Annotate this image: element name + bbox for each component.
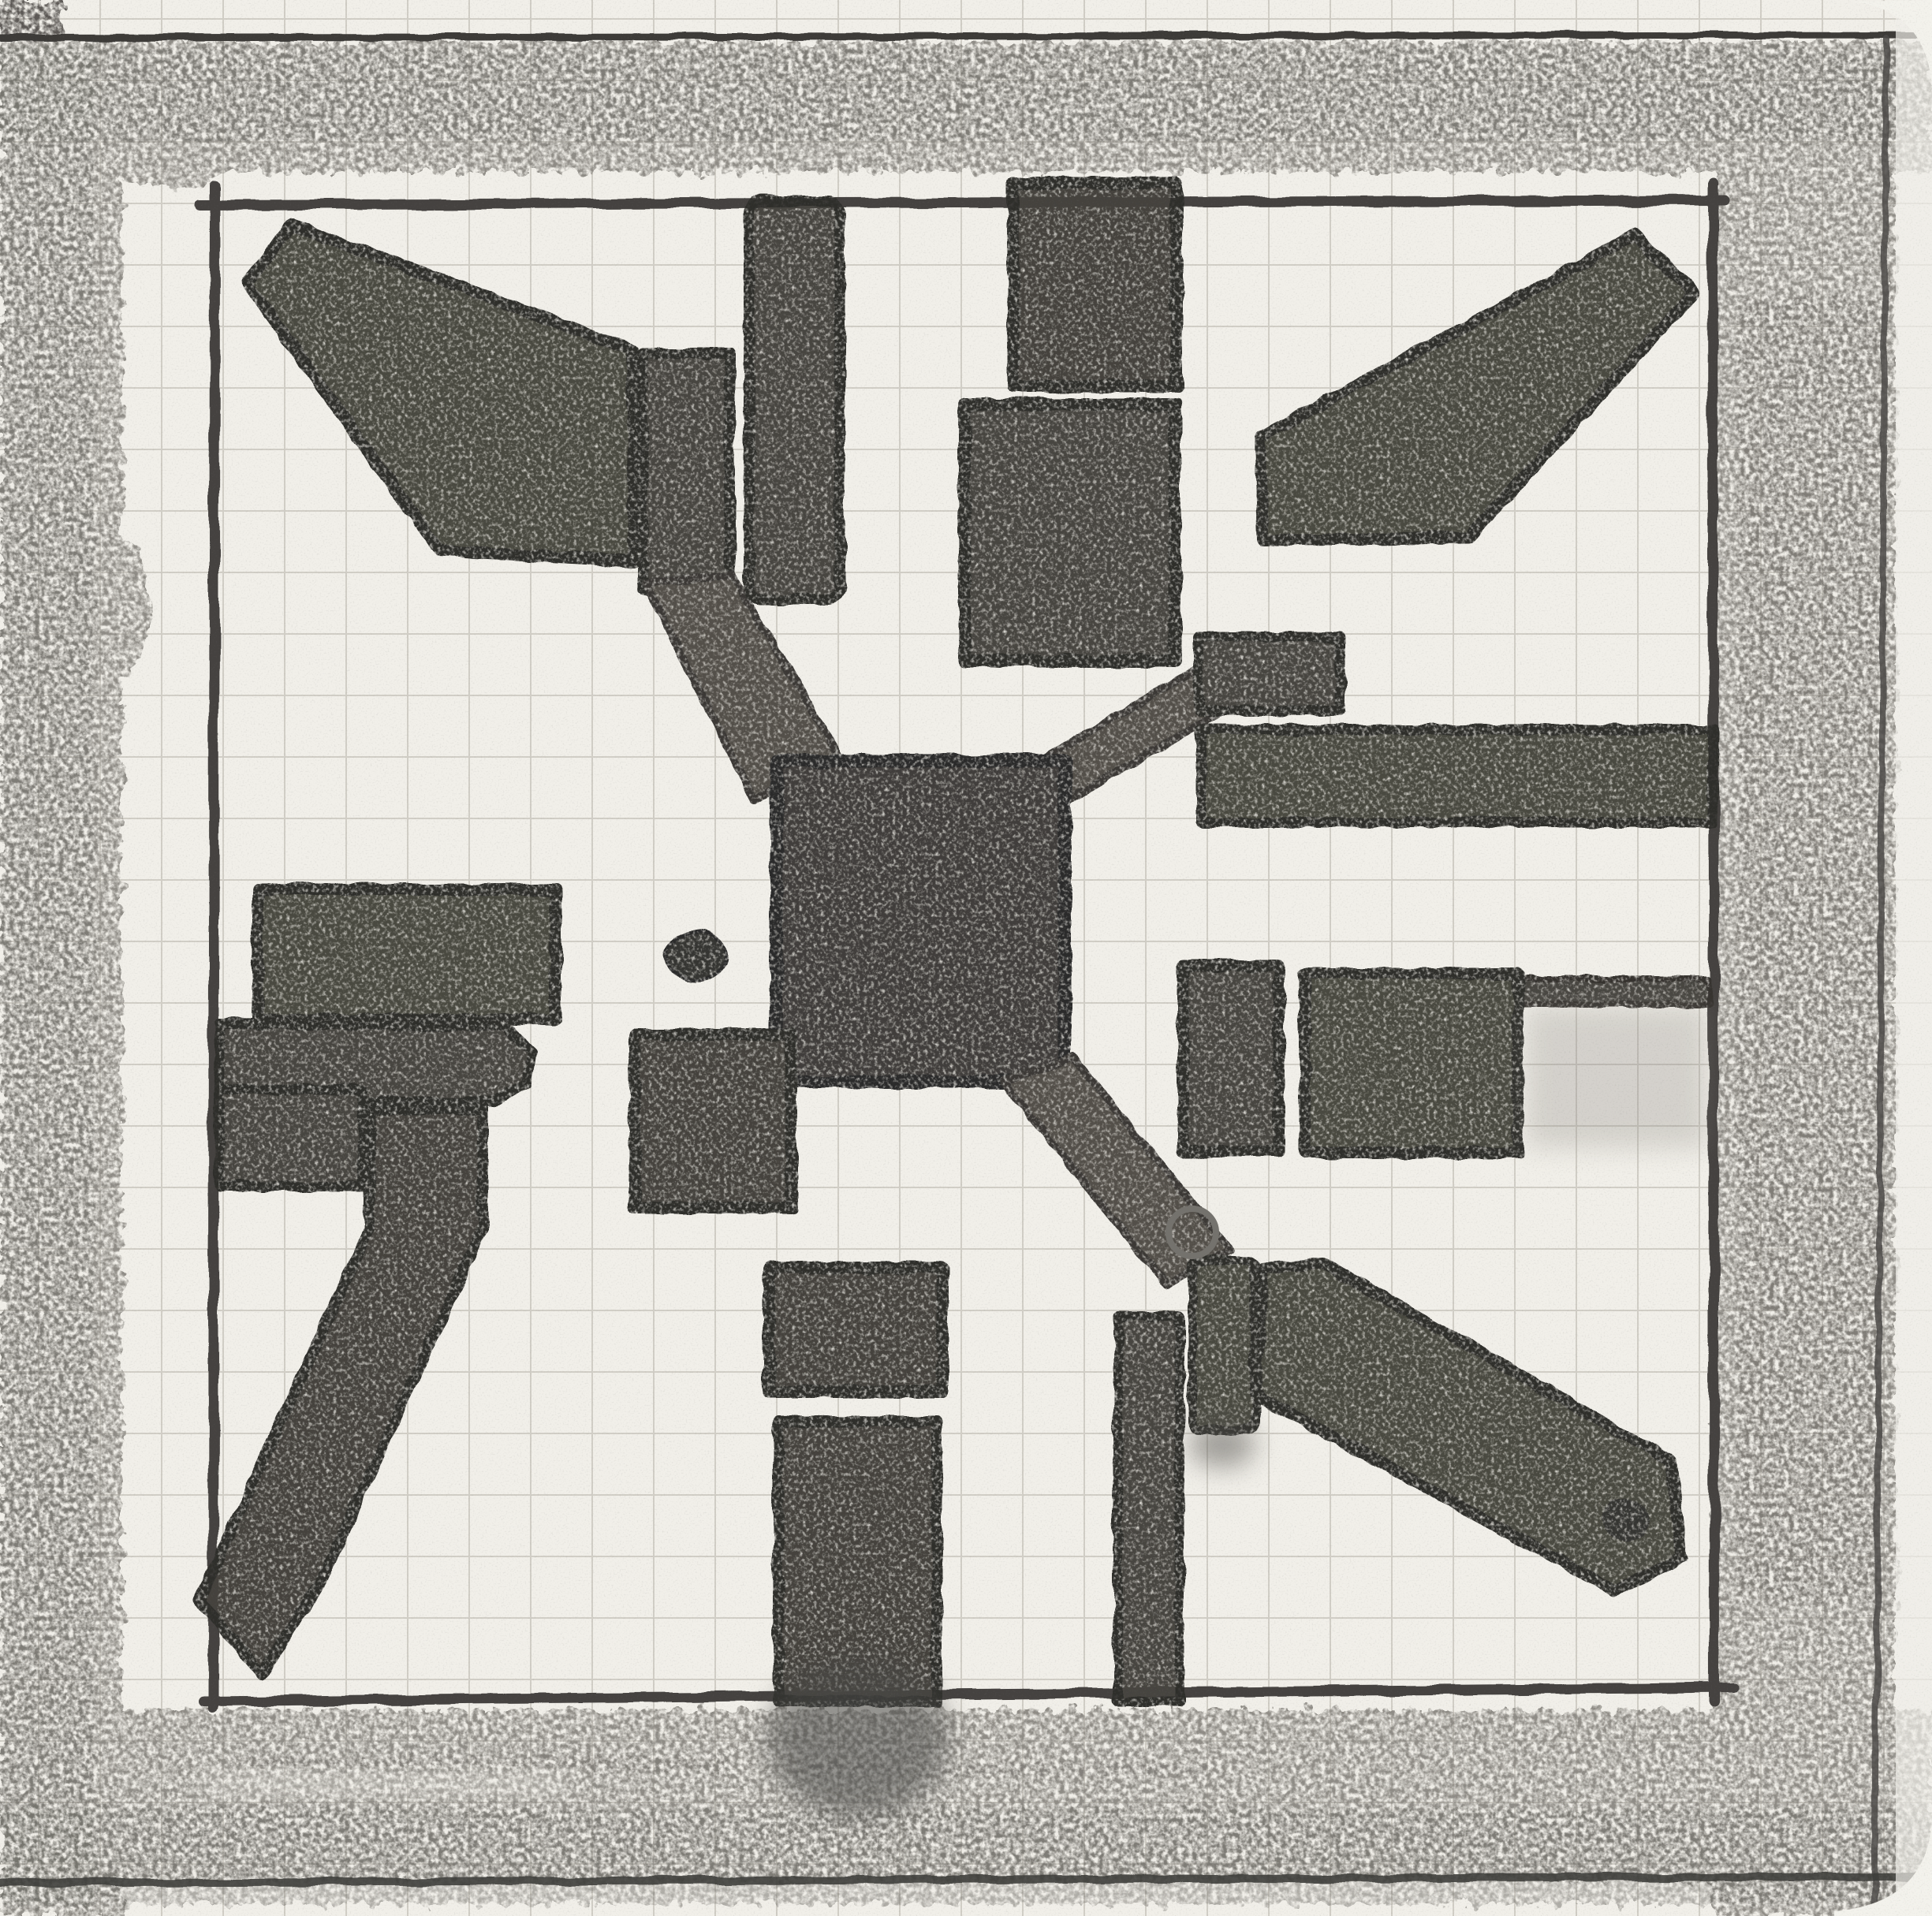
pencil-sketch-canvas [0, 0, 1932, 1916]
sketch-page [0, 0, 1932, 1916]
paper-grain [0, 0, 1932, 1916]
noise-overlay [0, 0, 1932, 1916]
